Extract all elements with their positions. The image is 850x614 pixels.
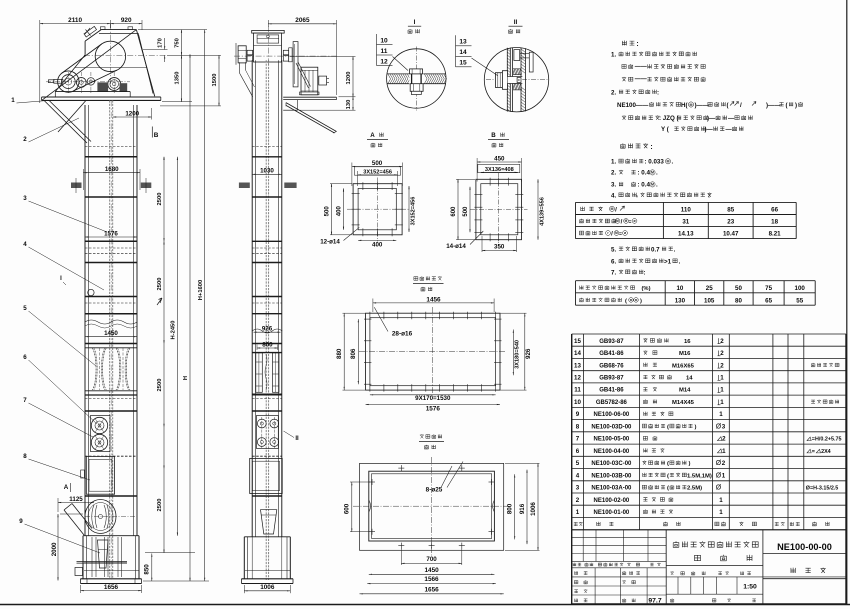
- svg-text:GB41-86: GB41-86: [599, 351, 624, 357]
- svg-text:1125: 1125: [69, 496, 83, 503]
- svg-text:/: /: [740, 102, 742, 109]
- svg-text:926: 926: [525, 348, 532, 359]
- svg-text:14: 14: [686, 376, 693, 382]
- svg-text:GB93-87: GB93-87: [599, 376, 624, 382]
- svg-text:8.21: 8.21: [769, 231, 782, 238]
- svg-text:)——: )——: [766, 102, 781, 109]
- svg-text:M: M: [616, 219, 619, 223]
- svg-text:1: 1: [11, 97, 15, 104]
- svg-text:105: 105: [704, 297, 715, 304]
- svg-text:M: M: [625, 219, 628, 223]
- svg-text:10: 10: [574, 399, 581, 406]
- svg-text:1: 1: [576, 509, 580, 516]
- svg-text:926: 926: [262, 326, 273, 333]
- svg-text:2110: 2110: [68, 17, 82, 24]
- svg-text:H: H: [183, 376, 189, 380]
- svg-text:GB93-87: GB93-87: [599, 339, 624, 345]
- svg-text:B: B: [154, 132, 159, 139]
- svg-text:1350: 1350: [175, 72, 181, 85]
- svg-text:750: 750: [175, 38, 181, 48]
- svg-text:97.7: 97.7: [648, 598, 661, 605]
- svg-text:2.: 2.: [611, 89, 616, 96]
- svg-text:14: 14: [459, 49, 467, 56]
- svg-text:4.: 4.: [611, 192, 616, 199]
- svg-text:1200: 1200: [125, 110, 139, 117]
- svg-text:4: 4: [23, 241, 27, 248]
- svg-text:23: 23: [727, 218, 734, 225]
- svg-text:M: M: [615, 231, 618, 235]
- svg-text:.: .: [674, 246, 676, 253]
- svg-text:31: 31: [682, 218, 689, 225]
- svg-text:15: 15: [459, 60, 467, 67]
- svg-text:NE100-03A-00: NE100-03A-00: [591, 486, 632, 492]
- svg-text:55: 55: [796, 297, 803, 304]
- svg-text:NE100-02-00: NE100-02-00: [594, 498, 630, 504]
- svg-text:A: A: [64, 484, 69, 491]
- svg-text:=: =: [629, 219, 632, 225]
- svg-text:2: 2: [720, 350, 724, 357]
- svg-text:1656: 1656: [424, 586, 439, 593]
- svg-text:.: .: [672, 159, 674, 166]
- svg-text:800: 800: [507, 503, 514, 514]
- svg-text:1.: 1.: [611, 159, 616, 166]
- svg-text:2: 2: [576, 497, 580, 504]
- svg-text:NE100-04-00: NE100-04-00: [594, 449, 630, 455]
- svg-text:130: 130: [346, 100, 352, 110]
- svg-text:11: 11: [381, 48, 388, 55]
- svg-text:6: 6: [576, 448, 580, 455]
- svg-text:13: 13: [459, 39, 467, 46]
- svg-text:: 0.4: : 0.4: [638, 170, 651, 177]
- svg-text:)—: )—: [705, 126, 714, 133]
- svg-text:)——: )——: [695, 102, 710, 109]
- svg-text:M: M: [690, 103, 693, 107]
- svg-text:=: =: [619, 232, 622, 238]
- svg-text:2.5M): 2.5M): [687, 486, 702, 492]
- svg-text:1456: 1456: [426, 296, 441, 303]
- svg-text:350: 350: [494, 243, 505, 250]
- svg-text:6: 6: [23, 354, 27, 361]
- svg-text:1680: 1680: [105, 166, 119, 173]
- svg-text:700: 700: [426, 556, 437, 563]
- svg-text:)—: )—: [707, 115, 716, 122]
- svg-text:130: 130: [675, 297, 686, 304]
- svg-text:Ø=H-3.15/2.5: Ø=H-3.15/2.5: [806, 486, 839, 492]
- svg-text:: 0.033: : 0.033: [645, 159, 665, 166]
- svg-text:1200: 1200: [346, 72, 352, 85]
- svg-text:600: 600: [451, 206, 457, 217]
- svg-text:100: 100: [795, 285, 806, 292]
- svg-text:10.47: 10.47: [723, 231, 739, 238]
- svg-text::: :: [650, 144, 652, 151]
- svg-text:H+1600: H+1600: [198, 280, 204, 300]
- svg-text:1.: 1.: [611, 51, 616, 58]
- svg-text:916: 916: [519, 503, 526, 514]
- svg-text:>1: >1: [664, 258, 672, 265]
- svg-text:M: M: [635, 298, 638, 302]
- svg-text:500: 500: [324, 206, 330, 217]
- svg-text:NE100-00-00: NE100-00-00: [777, 542, 832, 552]
- svg-text:Ø: Ø: [716, 485, 722, 492]
- svg-text:170: 170: [158, 38, 164, 48]
- svg-text:GB41-86: GB41-86: [599, 388, 624, 394]
- svg-text:(: (: [667, 473, 669, 479]
- svg-text:—: —: [726, 126, 733, 133]
- svg-text:1500: 1500: [212, 74, 218, 87]
- svg-text:920: 920: [121, 17, 132, 24]
- svg-text:2065: 2065: [295, 17, 310, 24]
- svg-text:1006: 1006: [260, 584, 275, 591]
- svg-text:75: 75: [765, 285, 772, 292]
- svg-text:—: —: [728, 115, 735, 122]
- svg-text:NE100-03C-00: NE100-03C-00: [591, 461, 632, 467]
- svg-text:28-ø16: 28-ø16: [392, 330, 413, 337]
- svg-text:.: .: [656, 170, 658, 177]
- svg-text:(: (: [625, 298, 627, 304]
- svg-text:10: 10: [380, 37, 388, 44]
- svg-text:2.: 2.: [611, 170, 616, 177]
- svg-text:1: 1: [720, 375, 724, 382]
- svg-text:5.: 5.: [611, 246, 616, 253]
- svg-text:2500: 2500: [157, 193, 163, 206]
- svg-text:): ): [695, 424, 697, 430]
- svg-text:8: 8: [576, 423, 580, 430]
- svg-text:14.13: 14.13: [678, 231, 694, 238]
- svg-text:400: 400: [372, 241, 383, 248]
- svg-text:(: (: [667, 486, 669, 492]
- svg-text:): ): [640, 298, 642, 304]
- svg-text:2: 2: [23, 136, 27, 143]
- svg-text:M: M: [630, 298, 633, 302]
- svg-text:12: 12: [574, 375, 581, 382]
- svg-text:850: 850: [144, 564, 151, 575]
- svg-text:13: 13: [574, 362, 581, 369]
- svg-text:12-ø14: 12-ø14: [320, 239, 340, 246]
- svg-text:1450: 1450: [104, 330, 118, 337]
- svg-text:1030: 1030: [260, 168, 274, 175]
- svg-text:M: M: [651, 183, 654, 187]
- svg-text:400: 400: [336, 206, 342, 217]
- svg-text:1: 1: [720, 399, 724, 406]
- svg-text:H-2450: H-2450: [171, 320, 177, 339]
- svg-text:5: 5: [576, 460, 580, 467]
- svg-text:): ): [795, 102, 797, 109]
- svg-text:NE100-05-00: NE100-05-00: [594, 437, 630, 443]
- svg-text:NE100-03B-00: NE100-03B-00: [591, 473, 632, 479]
- svg-text:3: 3: [23, 195, 27, 202]
- svg-text:1: 1: [719, 509, 723, 516]
- svg-text:1: 1: [719, 411, 723, 418]
- svg-text::: :: [657, 89, 659, 96]
- svg-text:M14: M14: [679, 388, 691, 394]
- svg-text:1: 1: [722, 472, 726, 479]
- svg-text:1: 1: [719, 497, 723, 504]
- svg-text:NE100-01-00: NE100-01-00: [594, 510, 630, 516]
- svg-text:2: 2: [722, 436, 726, 443]
- svg-text:4X139=556: 4X139=556: [540, 197, 546, 226]
- svg-text:1566: 1566: [424, 576, 439, 583]
- svg-text:M: M: [667, 160, 670, 164]
- svg-text:——: ——: [635, 77, 647, 83]
- svg-text:2: 2: [720, 362, 724, 369]
- svg-text:II: II: [295, 436, 299, 442]
- svg-text:6.: 6.: [611, 258, 616, 265]
- svg-text:450: 450: [494, 155, 505, 162]
- svg-text:,: ,: [636, 191, 638, 198]
- svg-text:1:50: 1:50: [743, 584, 757, 591]
- svg-text:GB5782-86: GB5782-86: [596, 400, 628, 406]
- svg-text:50: 50: [735, 285, 742, 292]
- svg-text:25: 25: [706, 285, 713, 292]
- svg-text:600: 600: [344, 503, 351, 514]
- svg-text:66: 66: [771, 207, 778, 214]
- svg-text:1: 1: [720, 387, 724, 394]
- svg-text:14: 14: [574, 350, 581, 357]
- svg-text:500: 500: [372, 160, 383, 167]
- svg-text::: :: [643, 269, 645, 276]
- svg-text:0.7: 0.7: [651, 246, 660, 253]
- svg-text:14-ø14: 14-ø14: [446, 243, 466, 250]
- svg-text:7.: 7.: [611, 269, 616, 276]
- svg-text:): ): [689, 461, 691, 467]
- svg-text:=: =: [812, 449, 815, 455]
- svg-text:.: .: [656, 182, 658, 189]
- svg-text:1.5M,1M): 1.5M,1M): [687, 473, 712, 479]
- svg-text:M16X65: M16X65: [672, 363, 695, 369]
- svg-text:3: 3: [576, 485, 580, 492]
- svg-text:9X170=1530: 9X170=1530: [415, 395, 451, 402]
- svg-text:806: 806: [350, 348, 357, 359]
- svg-text:16: 16: [684, 339, 691, 345]
- svg-text:10: 10: [676, 285, 683, 292]
- svg-text:1450: 1450: [424, 567, 439, 574]
- svg-text:500: 500: [463, 206, 469, 217]
- svg-text:1576: 1576: [426, 405, 441, 412]
- svg-text:15: 15: [574, 338, 581, 345]
- svg-text:2X4: 2X4: [821, 449, 831, 455]
- svg-text:7: 7: [576, 436, 580, 443]
- svg-text:3X136=408: 3X136=408: [485, 167, 514, 173]
- svg-text:.: .: [679, 258, 681, 265]
- svg-text::: :: [636, 41, 638, 48]
- svg-text:/: /: [615, 207, 617, 214]
- svg-text:5: 5: [23, 305, 27, 312]
- svg-text::: :: [708, 192, 710, 199]
- svg-text:2: 2: [722, 460, 726, 467]
- svg-text:1006: 1006: [530, 502, 537, 516]
- svg-text:(%): (%): [642, 286, 651, 292]
- svg-text:(: (: [667, 424, 669, 430]
- svg-text:85: 85: [727, 207, 734, 214]
- svg-text:65: 65: [765, 297, 772, 304]
- svg-text:18: 18: [771, 218, 778, 225]
- svg-text:M16: M16: [679, 351, 691, 357]
- svg-text:880: 880: [336, 348, 343, 359]
- svg-text:7: 7: [23, 397, 27, 404]
- svg-text:1: 1: [722, 448, 726, 455]
- svg-text:2000: 2000: [51, 542, 58, 556]
- svg-text:3X152=456: 3X152=456: [411, 197, 417, 226]
- svg-text:NE100-03D-00: NE100-03D-00: [591, 424, 632, 430]
- svg-text:800: 800: [262, 341, 273, 348]
- svg-text:3.: 3.: [611, 182, 616, 189]
- svg-text:NE100——: NE100——: [617, 102, 649, 109]
- svg-text:B: B: [491, 132, 496, 139]
- svg-text:1656: 1656: [104, 584, 119, 591]
- svg-text:Y (: Y (: [661, 126, 670, 133]
- svg-text:M: M: [651, 171, 654, 175]
- svg-text:II: II: [514, 19, 518, 26]
- svg-text:3X180=540: 3X180=540: [515, 340, 521, 369]
- svg-text:I: I: [414, 19, 416, 26]
- svg-text:9: 9: [576, 411, 580, 418]
- svg-text:2500: 2500: [157, 499, 163, 512]
- svg-text:11: 11: [574, 387, 581, 394]
- svg-text:——: ——: [635, 64, 647, 70]
- svg-text:80: 80: [735, 297, 742, 304]
- svg-text:4: 4: [576, 472, 580, 479]
- svg-text:A: A: [370, 132, 375, 139]
- svg-text:8: 8: [23, 453, 27, 460]
- svg-text:: JZQ (: : JZQ (: [659, 115, 680, 122]
- svg-text:3X152=456: 3X152=456: [363, 169, 392, 175]
- svg-text:H(: H(: [681, 102, 688, 109]
- svg-text:(: (: [667, 461, 669, 467]
- svg-text:2500: 2500: [157, 379, 163, 392]
- svg-text:=H/0.2+5.75: =H/0.2+5.75: [812, 437, 842, 443]
- svg-text:: 0.4: : 0.4: [638, 182, 651, 189]
- svg-text:2: 2: [720, 338, 724, 345]
- svg-text:3: 3: [722, 423, 726, 430]
- svg-text:GB68-76: GB68-76: [599, 363, 624, 369]
- svg-text:2500: 2500: [157, 278, 163, 291]
- svg-text:12: 12: [380, 58, 388, 65]
- svg-text:M14X45: M14X45: [672, 400, 695, 406]
- svg-text:9: 9: [19, 518, 23, 525]
- svg-text:NE100-06-00: NE100-06-00: [594, 412, 630, 418]
- svg-text:M: M: [611, 207, 614, 211]
- svg-text:110: 110: [681, 207, 692, 214]
- svg-text:8-ø25: 8-ø25: [426, 487, 443, 494]
